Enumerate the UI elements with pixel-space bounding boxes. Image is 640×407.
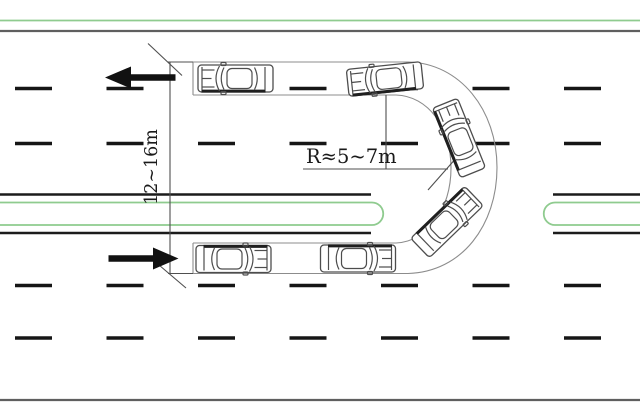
width-dimension-label: 12~16m xyxy=(142,129,162,205)
radius-dimension-label: R≈5~7m xyxy=(306,145,397,168)
car xyxy=(196,243,271,275)
car xyxy=(321,243,396,275)
u-turn-diagram: 12~16m R≈5~7m xyxy=(0,0,640,407)
diagram-canvas: 12~16m R≈5~7m xyxy=(0,0,640,407)
background xyxy=(0,0,640,407)
car xyxy=(198,63,273,95)
